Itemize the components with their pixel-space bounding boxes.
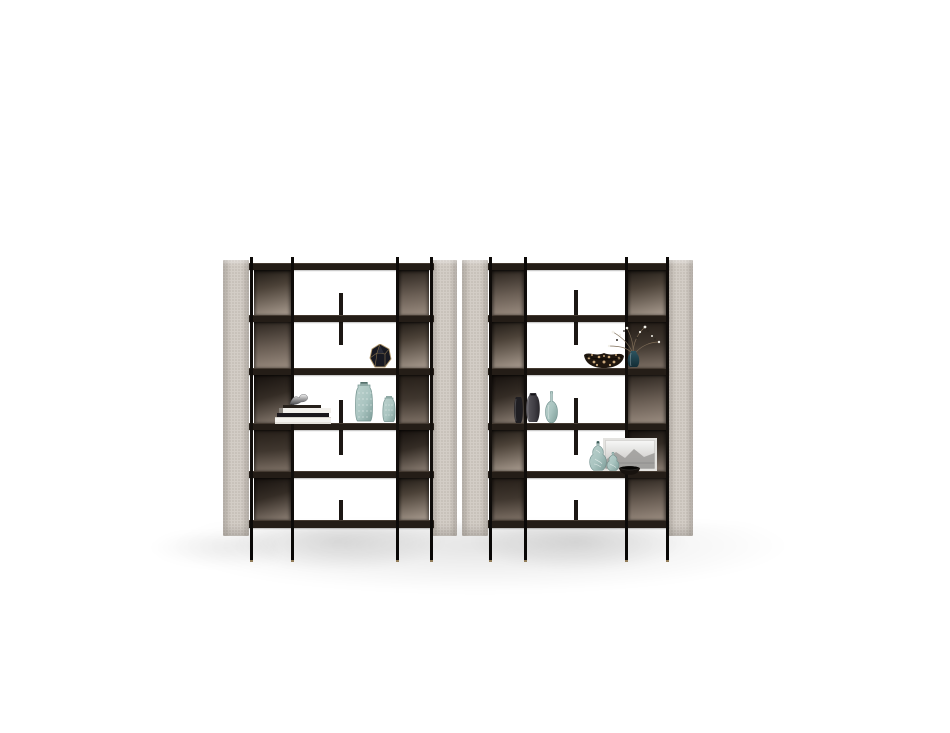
floor-shadow-edge bbox=[148, 534, 278, 568]
shelf bbox=[249, 315, 434, 322]
back-panel-cell bbox=[492, 270, 524, 315]
shelf bbox=[249, 368, 434, 375]
book bbox=[275, 417, 331, 424]
back-panel-cell bbox=[399, 321, 429, 368]
divider-tab bbox=[339, 500, 343, 520]
back-panel-cell bbox=[254, 321, 291, 368]
support-post bbox=[430, 257, 433, 562]
faceted-vase bbox=[369, 344, 392, 373]
back-panel-cell bbox=[399, 270, 429, 315]
shelf bbox=[249, 263, 434, 270]
black-bowl bbox=[618, 462, 641, 480]
product-photo-canvas bbox=[0, 0, 950, 733]
back-panel-cell bbox=[628, 270, 666, 315]
back-panel-cell bbox=[254, 429, 291, 471]
teal-vase-short bbox=[381, 396, 397, 428]
support-post bbox=[666, 257, 669, 562]
support-post bbox=[489, 257, 492, 562]
branch-vase bbox=[626, 351, 641, 373]
back-panel-cell bbox=[628, 477, 666, 520]
back-panel-cell bbox=[254, 270, 291, 315]
back-panel-cell bbox=[254, 477, 291, 520]
side-panel bbox=[432, 260, 457, 536]
teal-bottle bbox=[545, 391, 558, 428]
flat-black-vase bbox=[513, 397, 524, 428]
charcoal-vase bbox=[524, 393, 542, 428]
back-panel-cell bbox=[628, 374, 666, 423]
side-panel bbox=[462, 260, 488, 536]
side-panel bbox=[223, 260, 249, 536]
shelf bbox=[249, 520, 434, 528]
back-panel-cell bbox=[399, 374, 429, 423]
support-post bbox=[625, 257, 628, 562]
shelf bbox=[249, 423, 434, 430]
back-panel-cell bbox=[492, 477, 524, 520]
back-panel-cell bbox=[399, 429, 429, 471]
shelf bbox=[488, 263, 669, 270]
support-post bbox=[250, 257, 253, 562]
back-panel-cell bbox=[399, 477, 429, 520]
back-panel-cell bbox=[492, 321, 524, 368]
divider-tab bbox=[574, 500, 578, 520]
back-panel-cell bbox=[492, 429, 524, 471]
shelf bbox=[249, 471, 434, 478]
shelf bbox=[488, 315, 669, 322]
teal-vase-tall bbox=[353, 382, 375, 428]
gourd-vase-tall bbox=[589, 441, 607, 476]
leopard-bowl bbox=[583, 350, 625, 374]
shelf bbox=[488, 520, 669, 528]
side-panel bbox=[668, 260, 693, 536]
shelf bbox=[488, 368, 669, 375]
floor-shadow-right-unit bbox=[468, 528, 688, 572]
